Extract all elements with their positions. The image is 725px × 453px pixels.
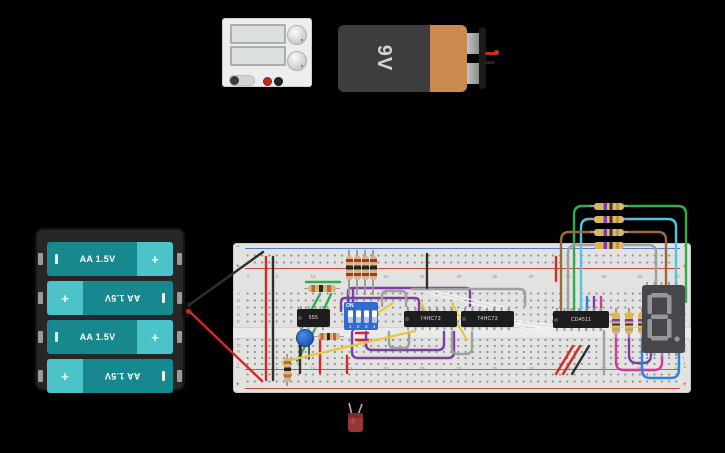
- resistor-10[interactable]: [590, 229, 628, 236]
- circuit-canvas: 9V AA 1.5V + AA 1.5V + AA 1.5V + AA 1.5V…: [0, 0, 725, 453]
- capacitor[interactable]: [296, 329, 314, 347]
- ic-cd4511[interactable]: CD4511: [553, 311, 609, 328]
- resistor-6[interactable]: [314, 333, 344, 340]
- dip-toggle-3[interactable]: [364, 310, 370, 323]
- resistor-11[interactable]: [590, 242, 628, 249]
- dip-toggle-1[interactable]: [348, 310, 354, 323]
- ic-555-timer[interactable]: 555: [297, 309, 330, 327]
- ic-label: CD4511: [571, 317, 591, 323]
- ic-label: 74HC73: [420, 316, 441, 322]
- ic-label: 74HC73: [477, 316, 498, 322]
- resistor-1[interactable]: [346, 250, 353, 295]
- led-red[interactable]: [344, 401, 366, 433]
- segment-g: [651, 315, 668, 320]
- ic-notch: [554, 318, 558, 322]
- segment-d: [651, 336, 668, 341]
- dip-toggle-4[interactable]: [372, 310, 378, 323]
- seven-segment-digit: [642, 285, 685, 353]
- led-highlight: [351, 418, 355, 424]
- wire-gray-3[interactable]: [412, 289, 525, 306]
- resistor-7[interactable]: [284, 354, 291, 386]
- wire-purple-4[interactable]: [352, 332, 454, 358]
- resistor-9[interactable]: [590, 216, 628, 223]
- segment-c: [667, 319, 672, 338]
- resistor-8[interactable]: [590, 203, 628, 210]
- dip-number: 4: [372, 324, 378, 329]
- wire-white-2[interactable]: [433, 291, 504, 307]
- resistor-4[interactable]: [370, 250, 377, 295]
- dip-number: 3: [364, 324, 370, 329]
- ic-74hc73-2[interactable]: 74HC73: [461, 311, 514, 327]
- resistor-5[interactable]: [304, 285, 340, 292]
- resistor-12[interactable]: [612, 308, 620, 338]
- segment-a: [651, 293, 668, 298]
- segment-dp: [674, 336, 679, 341]
- dip-switch[interactable]: ON 1 2 3 4: [344, 302, 378, 330]
- ic-label: 555: [309, 315, 319, 321]
- dip-number: 2: [356, 324, 362, 329]
- resistor-3[interactable]: [362, 250, 369, 295]
- resistor-13[interactable]: [625, 308, 633, 338]
- led-cap: [348, 413, 363, 418]
- ic-74hc73-1[interactable]: 74HC73: [404, 311, 457, 327]
- ic-notch: [405, 317, 409, 321]
- wire-black-pack-negative[interactable]: [189, 252, 263, 305]
- segment-b: [667, 295, 672, 314]
- wire-layer: [0, 0, 725, 453]
- wire-red-pack-positive[interactable]: [189, 311, 262, 381]
- resistor-2[interactable]: [354, 250, 361, 295]
- seven-segment-display[interactable]: [642, 285, 685, 353]
- dip-toggle-2[interactable]: [356, 310, 362, 323]
- dip-on-label: ON: [346, 303, 354, 309]
- segment-f: [648, 295, 653, 314]
- segment-e: [648, 319, 653, 338]
- ic-notch: [298, 316, 302, 320]
- ic-notch: [462, 317, 466, 321]
- wire-black-3[interactable]: [572, 346, 589, 374]
- dip-number: 1: [348, 324, 354, 329]
